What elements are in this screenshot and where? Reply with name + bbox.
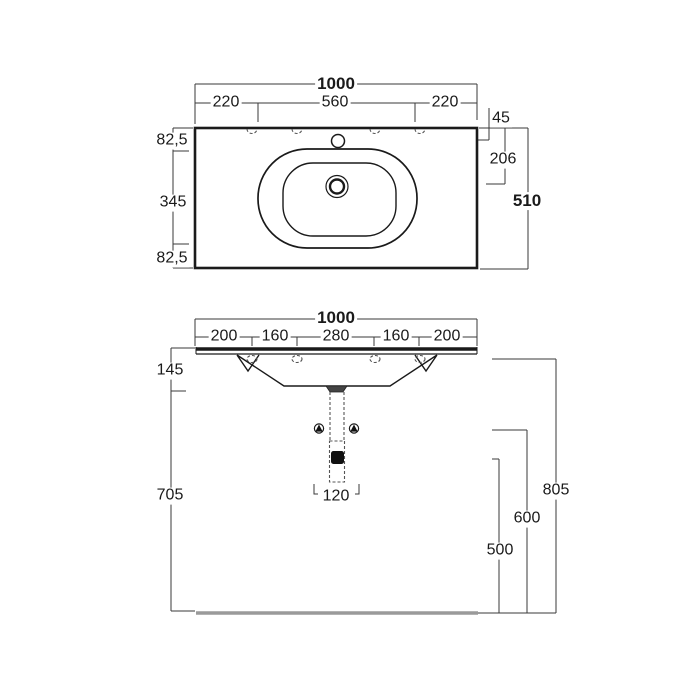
front-fixing-holes (247, 356, 425, 363)
dim-underside-clearance: 705 (155, 488, 186, 505)
faucet-hole (332, 135, 345, 148)
dim-front-overall-width: 1000 (315, 309, 357, 327)
water-supply-symbols (314, 424, 358, 433)
dim-plan-left-section: 220 (211, 95, 242, 112)
supply-symbol-triangle (350, 425, 357, 432)
front-view (171, 319, 556, 613)
dim-hole-spacing-4: 160 (381, 329, 412, 346)
dim-hole-spacing-5: 200 (432, 329, 463, 346)
plan-view (173, 84, 528, 269)
basin-underside-profile (237, 355, 437, 386)
dim-trap-width: 120 (321, 489, 352, 506)
fixing-hole (370, 356, 380, 363)
dim-hole-spacing-1: 200 (209, 329, 240, 346)
dim-edge-to-drain: 206 (488, 152, 519, 169)
dim-basin-height: 145 (155, 363, 186, 380)
front-dimension-lines (171, 319, 556, 613)
drain-inner-circle (330, 180, 344, 194)
plan-dimension-lines (173, 84, 528, 269)
dim-hole-spacing-2: 160 (260, 329, 291, 346)
drain-pipe-hidden (330, 392, 345, 482)
dim-plan-center-section: 560 (320, 95, 351, 112)
dim-depth-front: 82,5 (154, 251, 189, 268)
drain-valve (331, 451, 344, 464)
dim-plan-overall-width: 1000 (315, 75, 357, 93)
washbasin-technical-drawing: 1000 220 560 220 45 206 510 82,5 345 82,… (0, 0, 700, 700)
fixing-hole (292, 356, 302, 363)
dim-plan-right-section: 220 (430, 95, 461, 112)
plan-fixing-holes (247, 129, 425, 134)
dim-depth-back: 82,5 (154, 133, 189, 150)
dim-hole-spacing-3: 280 (321, 329, 352, 346)
dim-depth-middle: 345 (158, 195, 189, 212)
supply-symbol-triangle (315, 425, 322, 432)
bowl-outer-rim (258, 149, 417, 248)
dim-drain-height: 500 (485, 543, 516, 560)
drain-hole (326, 176, 348, 198)
bowl-inner-rim (283, 163, 396, 236)
dim-plan-overall-depth: 510 (511, 192, 543, 210)
dim-supply-height: 600 (512, 511, 543, 528)
dim-rim-height: 805 (541, 483, 572, 500)
dim-edge-to-faucet: 45 (490, 111, 512, 128)
drain-fitting (326, 386, 347, 392)
basin-slab (196, 347, 477, 354)
